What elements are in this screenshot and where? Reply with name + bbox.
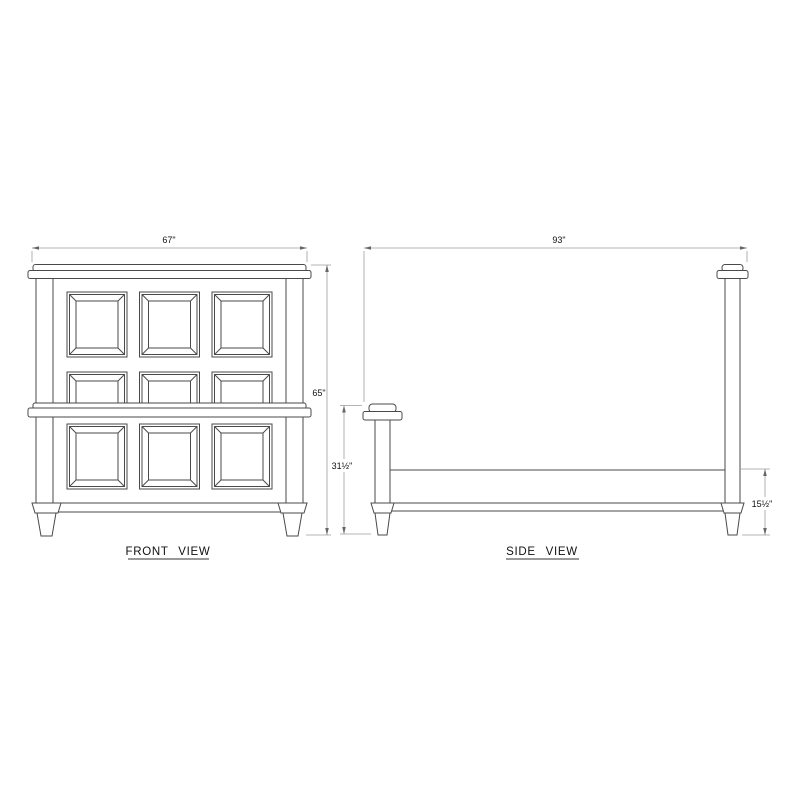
side-headboard-post: [725, 275, 740, 505]
footboard-top-rail: [28, 403, 311, 417]
side-bottom-rail: [390, 503, 725, 511]
side-footboard-post: [375, 418, 390, 505]
front-left-post: [36, 275, 53, 505]
front-width-label: 67": [162, 235, 175, 245]
side-post-height-label: 31½": [332, 461, 353, 471]
technical-drawing: 67" 65" FRONT VIEW: [0, 0, 800, 800]
front-height-label: 65": [312, 388, 325, 398]
side-footboard-leg-collar: [371, 503, 394, 513]
front-left-leg-collar: [32, 503, 61, 513]
side-view-label: SIDE VIEW: [506, 546, 578, 558]
side-rail-height-label: 15½": [752, 499, 773, 509]
front-right-leg-collar: [278, 503, 307, 513]
side-length-label: 93": [552, 235, 565, 245]
side-headboard-foot: [725, 513, 740, 535]
headboard-cap: [28, 265, 311, 279]
side-headboard-leg-collar: [721, 503, 744, 513]
front-view-label: FRONT VIEW: [126, 546, 211, 558]
footboard-bottom-rail: [53, 503, 286, 512]
side-footboard-post-cap: [363, 404, 402, 420]
side-footboard-foot: [375, 513, 390, 535]
canvas-background: [0, 0, 800, 800]
front-right-post: [286, 275, 303, 505]
side-headboard-post-cap: [717, 265, 748, 279]
